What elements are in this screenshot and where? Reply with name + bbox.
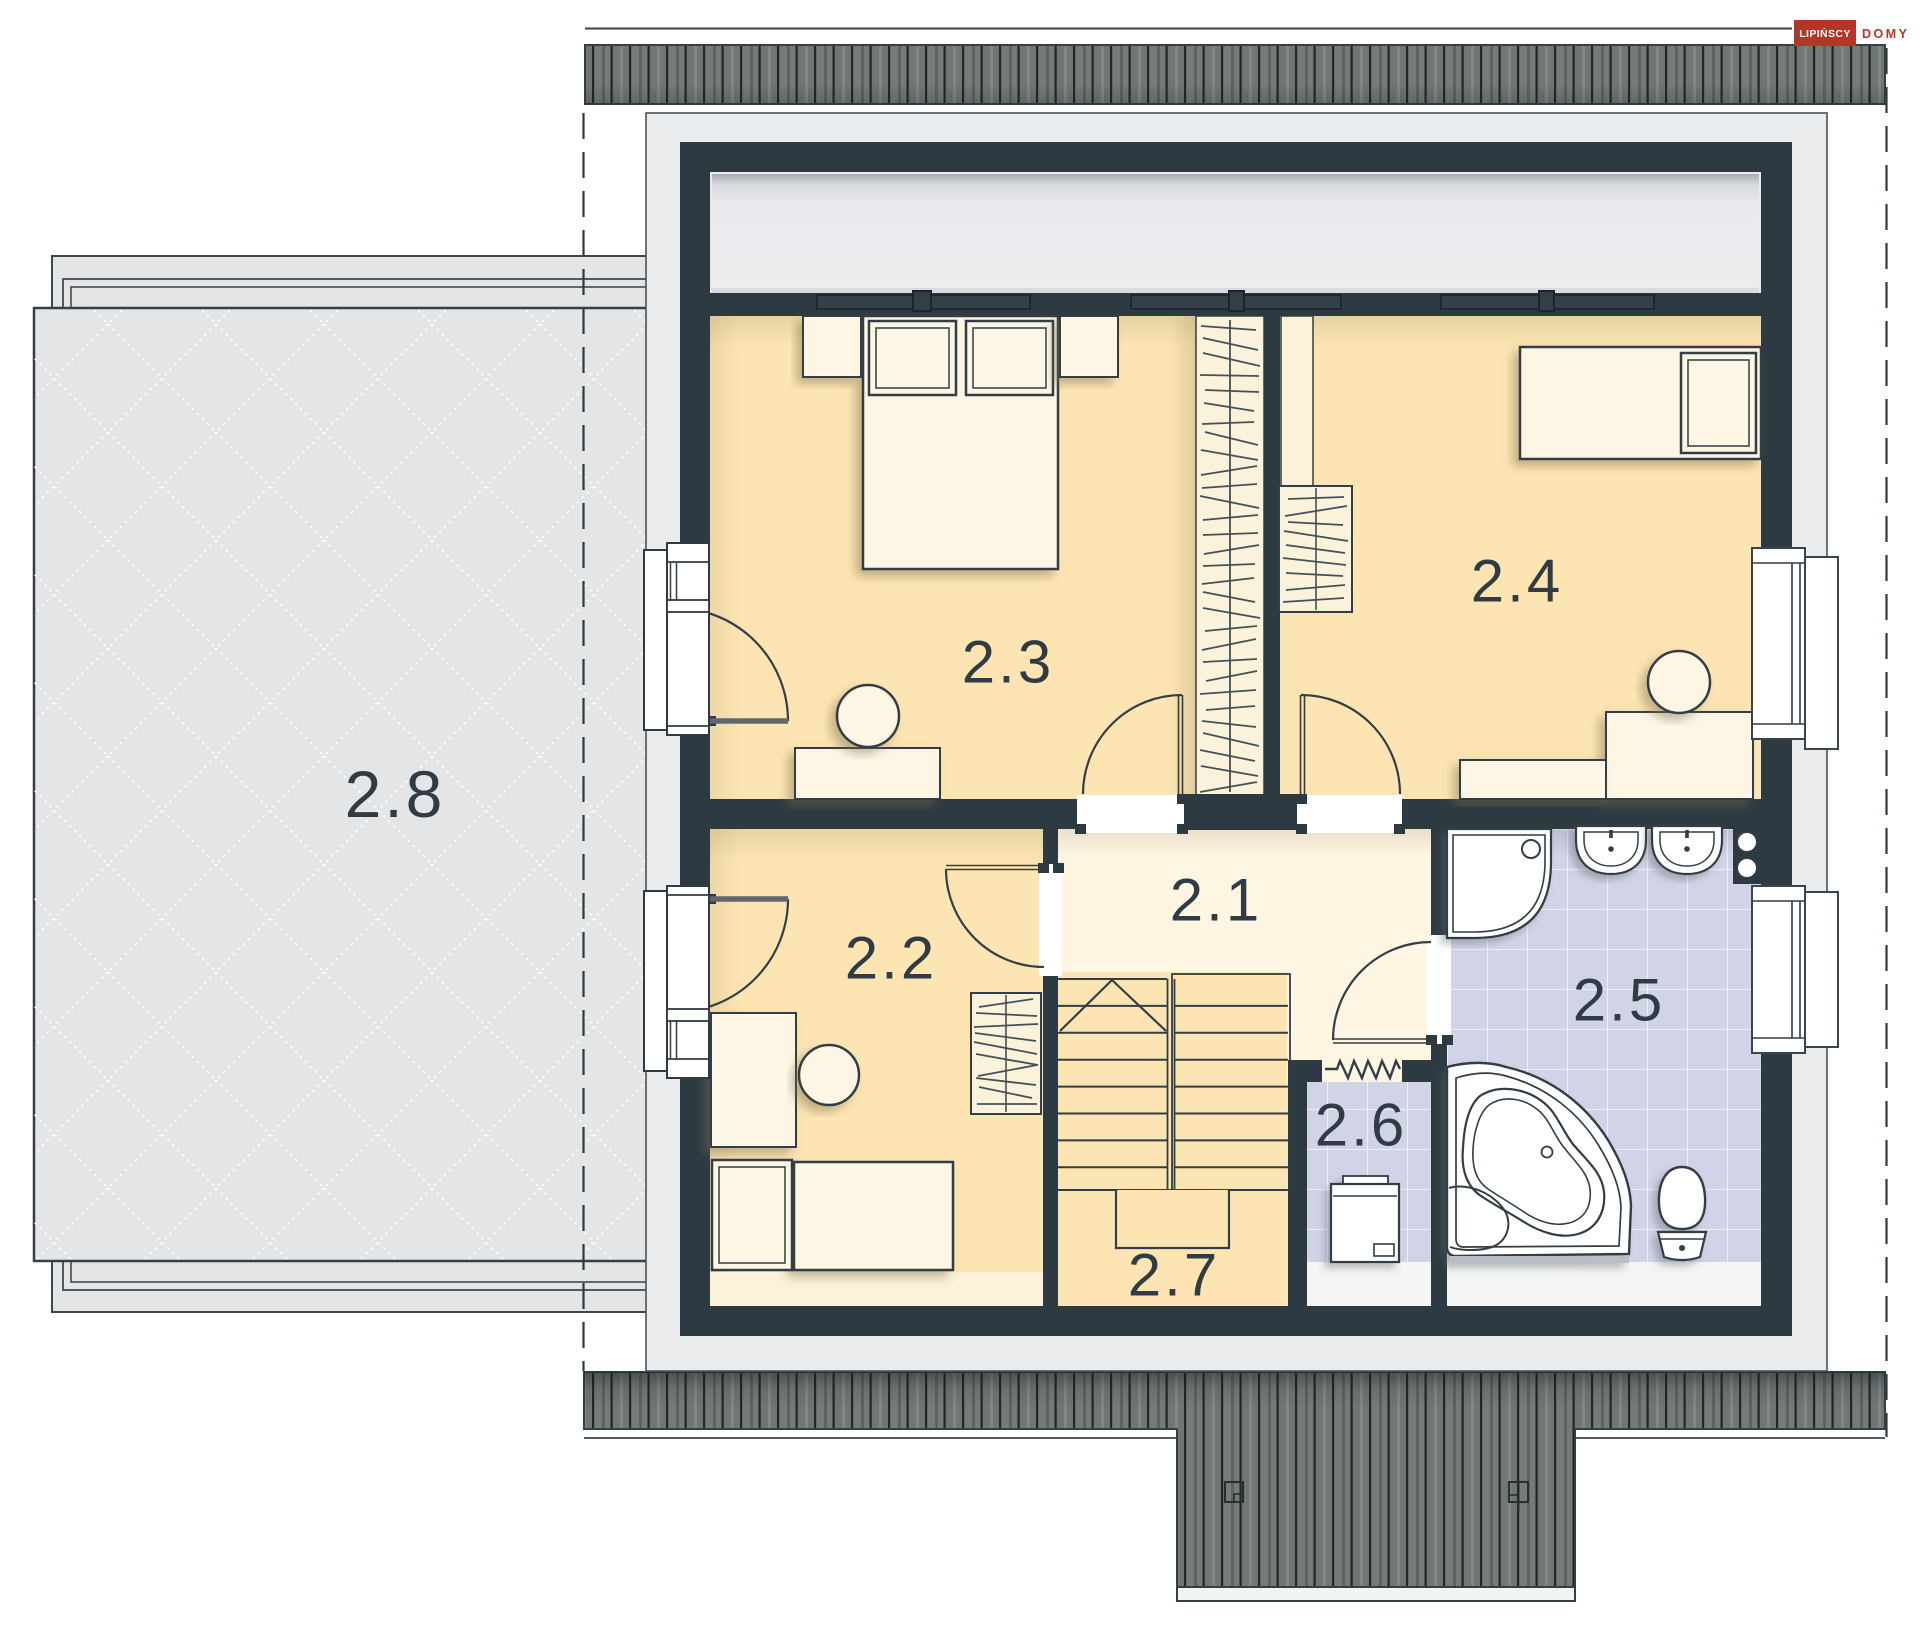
svg-text:DOMY: DOMY bbox=[1862, 27, 1910, 41]
svg-text:2.3: 2.3 bbox=[962, 629, 1054, 696]
svg-text:2.5: 2.5 bbox=[1573, 967, 1665, 1034]
svg-text:LIPIŃSCY: LIPIŃSCY bbox=[1799, 27, 1851, 40]
svg-text:2.8: 2.8 bbox=[345, 757, 446, 831]
svg-text:2.1: 2.1 bbox=[1170, 867, 1262, 934]
svg-text:2.7: 2.7 bbox=[1128, 1242, 1220, 1309]
svg-text:2.4: 2.4 bbox=[1471, 548, 1563, 615]
svg-text:2.2: 2.2 bbox=[845, 925, 937, 992]
svg-text:2.6: 2.6 bbox=[1315, 1092, 1407, 1159]
